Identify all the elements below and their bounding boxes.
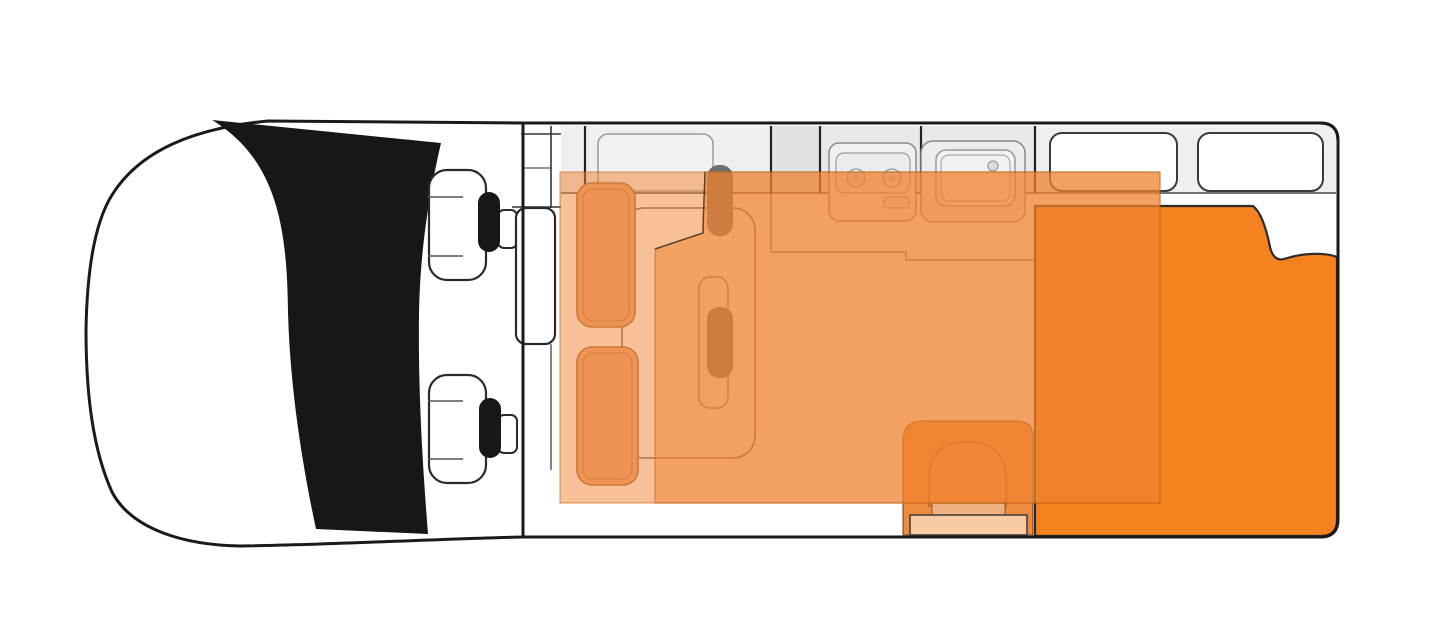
seat-cushion — [429, 170, 486, 280]
seat-headrest — [478, 192, 500, 252]
campervan-floorplan — [0, 0, 1439, 644]
window-rear-right — [1198, 133, 1323, 191]
seat-cushion — [429, 375, 486, 483]
seat-armrest — [498, 210, 517, 248]
sink-tap — [988, 161, 998, 171]
seat-headrest — [479, 398, 501, 458]
bed-overlay-upper — [655, 172, 1160, 503]
entry-step-lower — [910, 515, 1027, 535]
